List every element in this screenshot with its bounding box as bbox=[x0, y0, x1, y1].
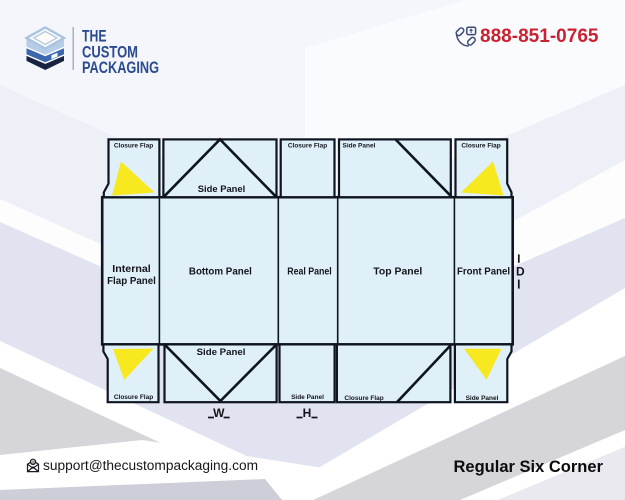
svg-text:Top Panel: Top Panel bbox=[373, 267, 422, 278]
svg-text:Real Panel: Real Panel bbox=[287, 267, 332, 278]
svg-text:Side Panel: Side Panel bbox=[343, 142, 376, 149]
svg-text:888-851-0765: 888-851-0765 bbox=[480, 26, 599, 47]
svg-text:D: D bbox=[516, 265, 525, 279]
svg-text:Bottom Panel: Bottom Panel bbox=[189, 267, 252, 278]
svg-text:PACKAGING: PACKAGING bbox=[82, 59, 159, 77]
svg-text:H: H bbox=[303, 406, 312, 420]
svg-text:Side Panel: Side Panel bbox=[198, 183, 246, 194]
svg-text:Closure Flap: Closure Flap bbox=[114, 394, 153, 401]
svg-text:Side Panel: Side Panel bbox=[466, 395, 499, 402]
svg-text:Front Panel: Front Panel bbox=[457, 267, 510, 278]
svg-text:Closure Flap: Closure Flap bbox=[288, 143, 327, 150]
svg-text:Side Panel: Side Panel bbox=[197, 346, 246, 357]
svg-text:Internal: Internal bbox=[112, 264, 151, 275]
svg-text:Regular Six Corner: Regular Six Corner bbox=[454, 458, 604, 476]
svg-text:W: W bbox=[213, 406, 225, 420]
svg-text:Side Panel: Side Panel bbox=[291, 394, 324, 401]
svg-text:Closure Flap: Closure Flap bbox=[114, 143, 153, 150]
svg-text:Closure Flap: Closure Flap bbox=[344, 395, 383, 402]
svg-text:@: @ bbox=[31, 460, 36, 465]
svg-text:support@thecustompackaging.com: support@thecustompackaging.com bbox=[43, 458, 258, 473]
svg-text:Closure Flap: Closure Flap bbox=[461, 142, 500, 149]
svg-text:Flap Panel: Flap Panel bbox=[107, 276, 156, 287]
